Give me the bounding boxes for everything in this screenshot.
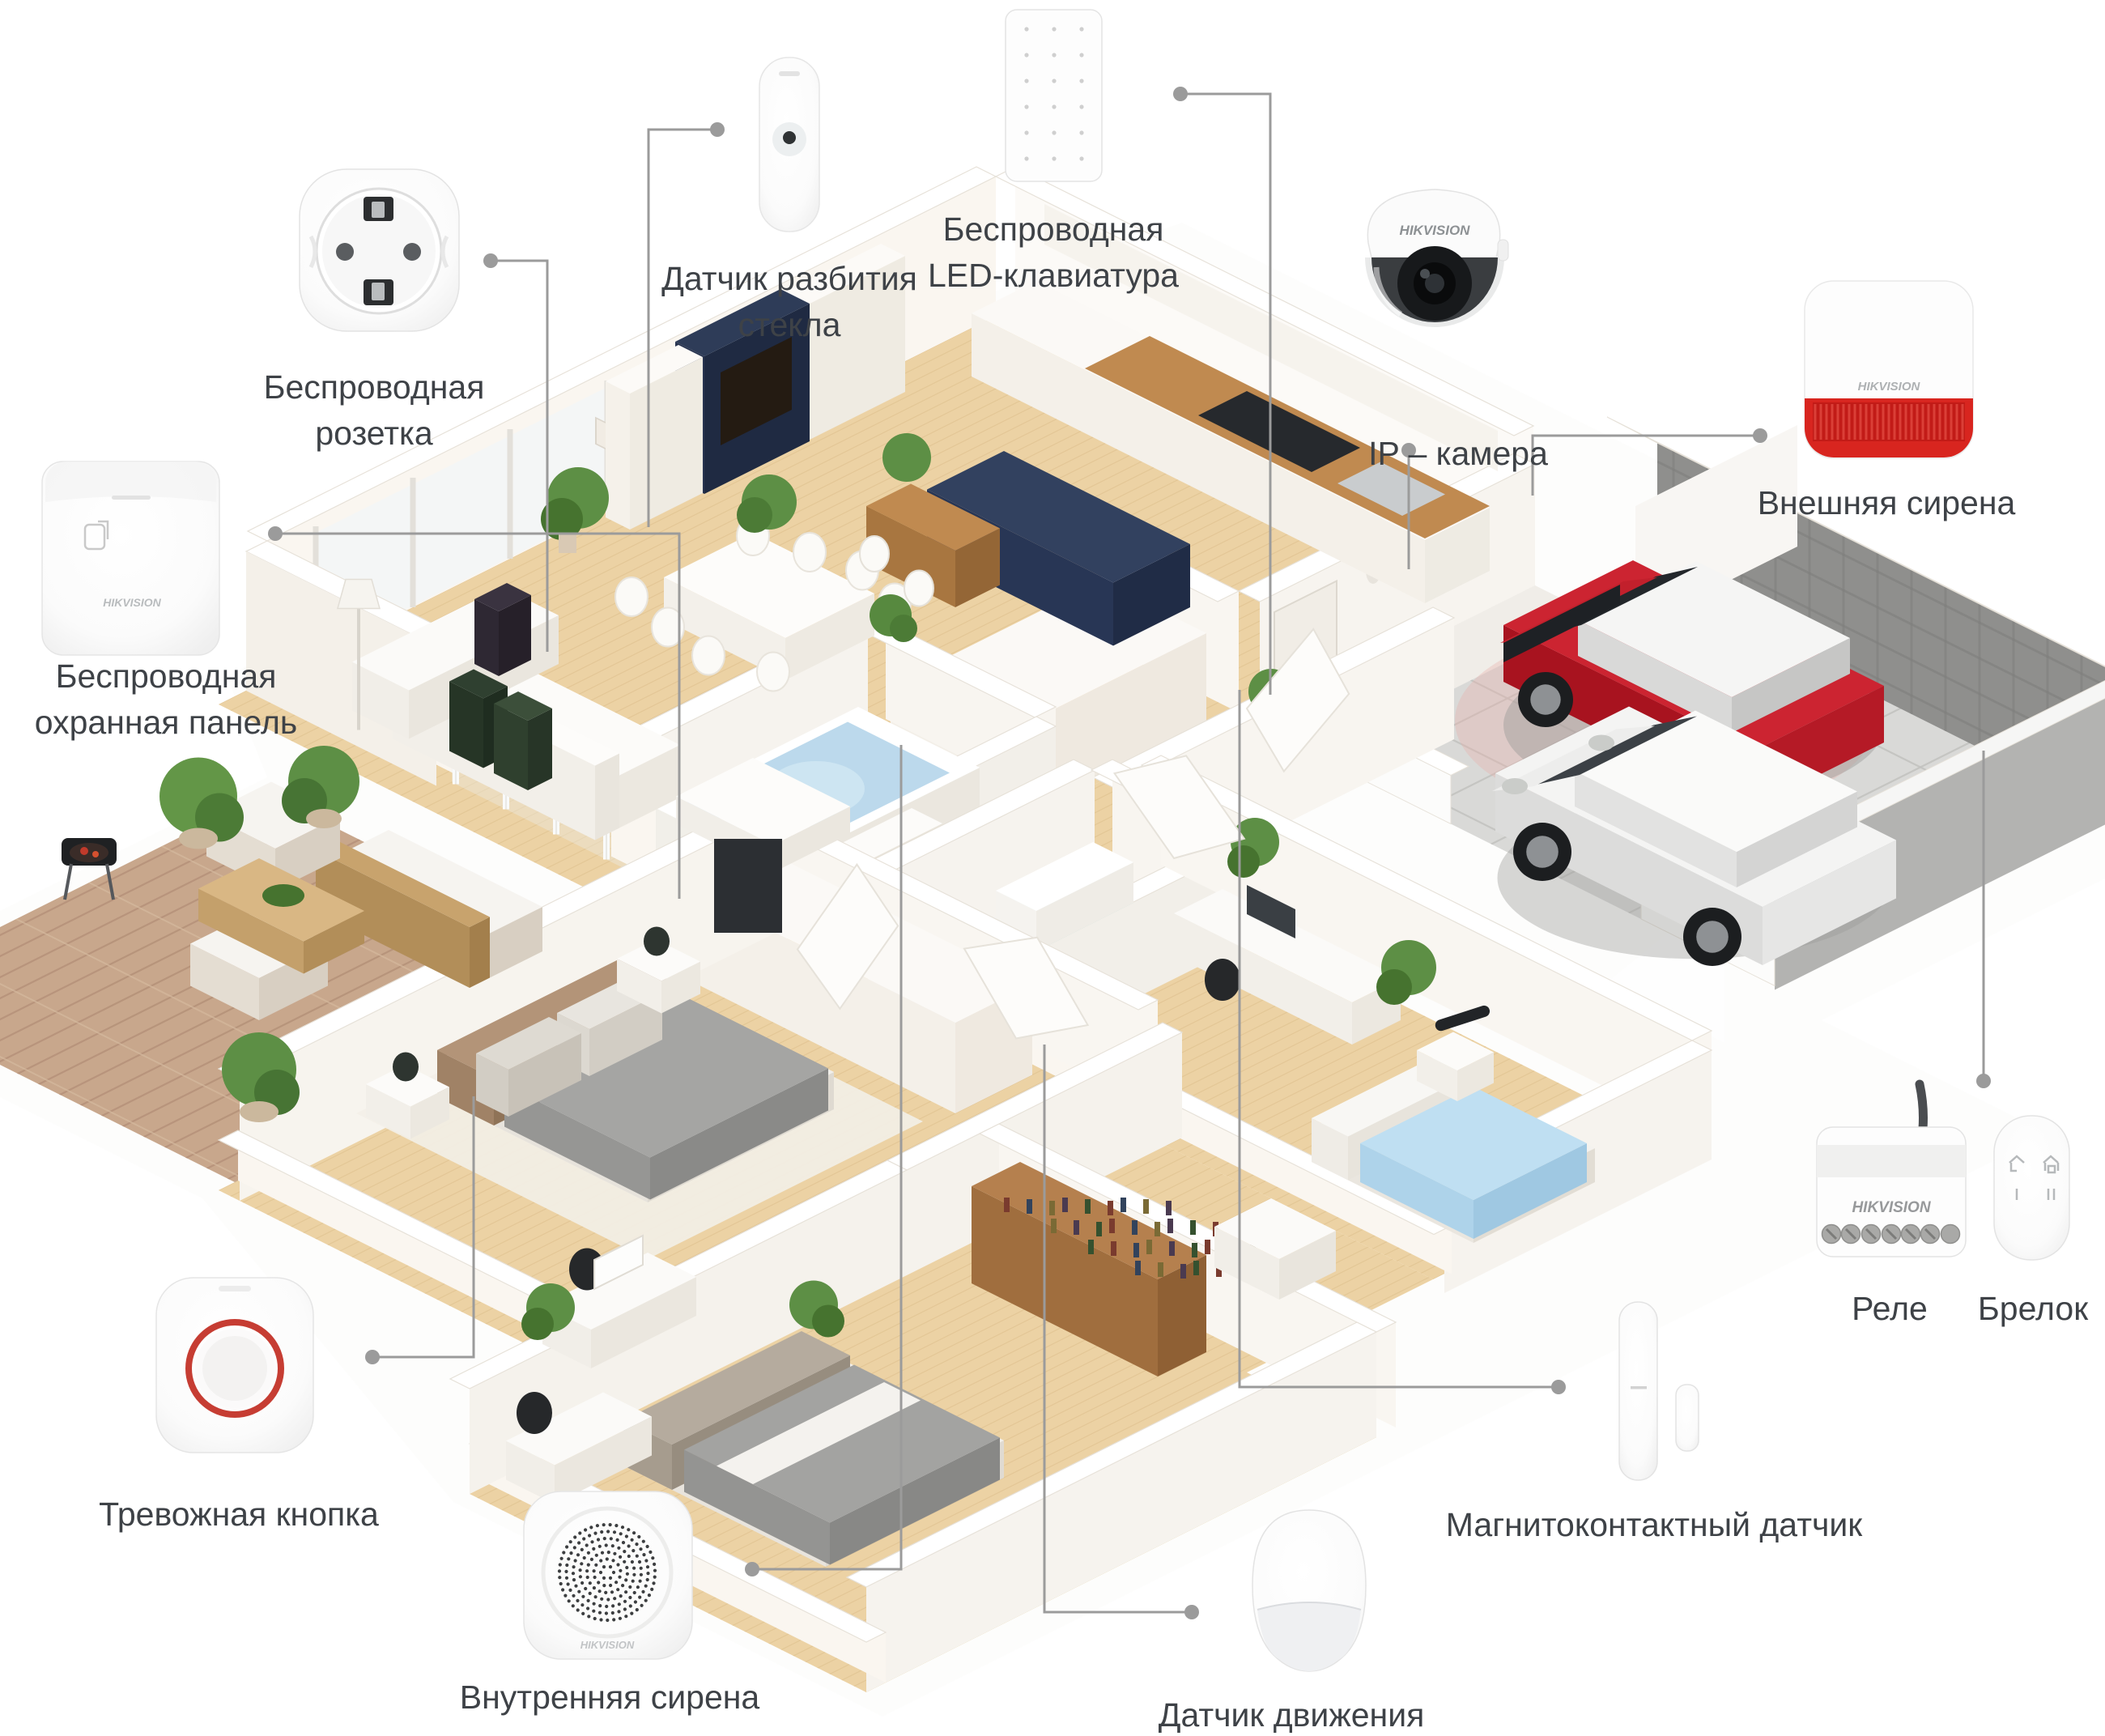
svg-text:Внешняя сирена: Внешняя сирена bbox=[1758, 484, 2016, 521]
svg-text:Внутренняя сирена: Внутренняя сирена bbox=[460, 1679, 760, 1716]
svg-text:Датчик разбития: Датчик разбития bbox=[661, 260, 917, 297]
svg-text:IP – камера: IP – камера bbox=[1368, 435, 1548, 472]
svg-text:Реле: Реле bbox=[1852, 1290, 1928, 1327]
svg-text:HIKVISION: HIKVISION bbox=[1852, 1199, 1931, 1216]
svg-text:Беспроводная: Беспроводная bbox=[56, 657, 277, 695]
svg-text:охранная панель: охранная панель bbox=[35, 704, 298, 741]
svg-text:Тревожная кнопка: Тревожная кнопка bbox=[99, 1496, 379, 1533]
svg-text:HIKVISION: HIKVISION bbox=[103, 596, 161, 609]
svg-text:Беспроводная: Беспроводная bbox=[943, 211, 1164, 248]
svg-text:Беспроводная: Беспроводная bbox=[264, 368, 485, 406]
svg-text:розетка: розетка bbox=[315, 415, 433, 452]
svg-text:HIKVISION: HIKVISION bbox=[1858, 380, 1921, 394]
svg-text:Магнитоконтактный датчик: Магнитоконтактный датчик bbox=[1446, 1506, 1863, 1543]
svg-text:Датчик движения: Датчик движения bbox=[1159, 1696, 1425, 1734]
svg-text:Брелок: Брелок bbox=[1978, 1290, 2089, 1327]
svg-text:LED-клавиатура: LED-клавиатура bbox=[928, 257, 1179, 294]
svg-text:HIKVISION: HIKVISION bbox=[1400, 223, 1471, 238]
svg-text:HIKVISION: HIKVISION bbox=[580, 1639, 635, 1651]
svg-text:стекла: стекла bbox=[738, 306, 841, 343]
